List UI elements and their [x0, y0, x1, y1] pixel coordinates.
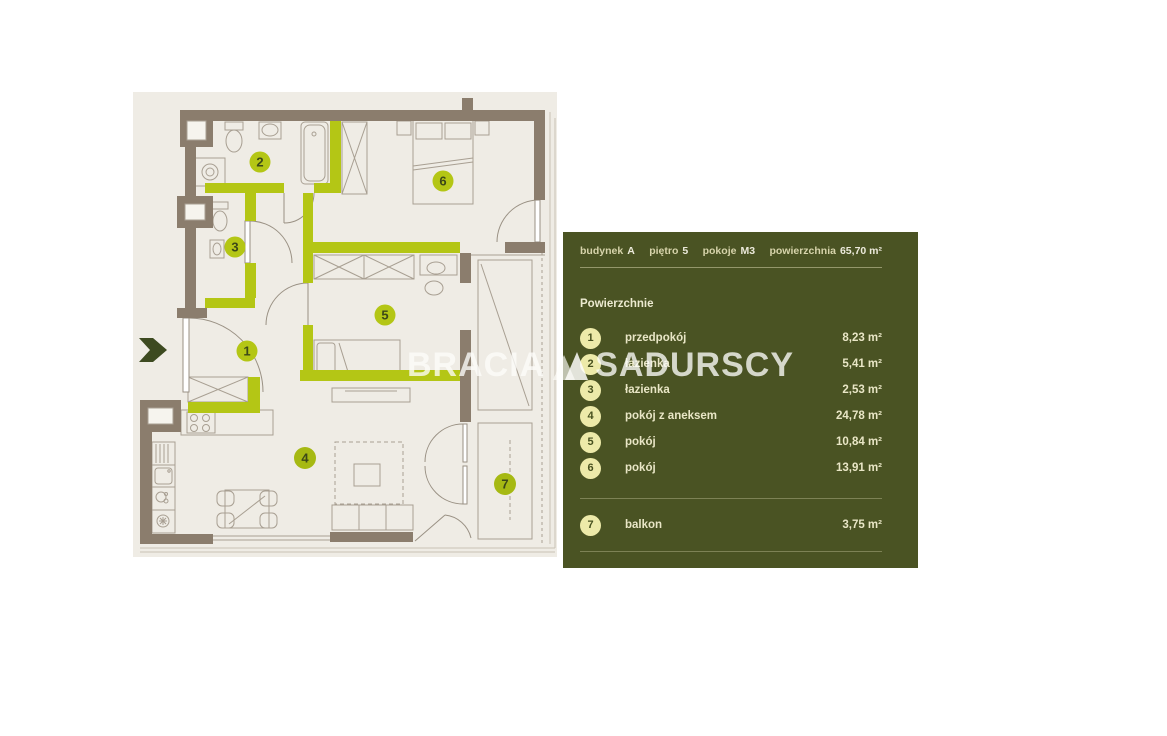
- bathtub-icon: [301, 122, 328, 184]
- room-area: 3,75 m²: [842, 519, 882, 531]
- room-name: balkon: [625, 519, 662, 531]
- header-building: budynekA: [580, 245, 635, 257]
- room-number-badge: 1: [580, 328, 601, 349]
- wall-windows: [148, 121, 206, 424]
- header-floor: piętro5: [649, 245, 688, 257]
- window-icon: [213, 536, 330, 540]
- room-number: 1: [243, 344, 250, 359]
- room-area: 2,53 m²: [842, 384, 882, 396]
- room-number-badge: 6: [580, 458, 601, 479]
- balcony-outline: [471, 252, 545, 544]
- door-arc: [425, 424, 463, 462]
- kitchen-hob-icon: [181, 410, 273, 435]
- door-arc: [425, 466, 463, 504]
- door-arc: [266, 283, 308, 325]
- room-number-badge: 5: [580, 432, 601, 453]
- room-area: 24,78 m²: [836, 410, 882, 422]
- washing-machine-icon: [195, 158, 225, 186]
- room-number: 6: [439, 174, 446, 189]
- door-arc: [445, 515, 471, 538]
- room-area: 8,23 m²: [842, 332, 882, 344]
- small-sink-icon: [210, 240, 224, 258]
- room-number: 4: [301, 451, 309, 466]
- door-leaf: [245, 221, 250, 263]
- room-name: pokój: [625, 436, 656, 448]
- sofa-icon: [332, 442, 413, 530]
- door-leaf: [463, 424, 467, 462]
- desk-icon: [420, 255, 457, 295]
- door-arc: [497, 200, 539, 242]
- floorplan-drawing: 1 2 3 4 5 6 7: [133, 92, 557, 557]
- room-number: 7: [501, 477, 508, 492]
- room-row-3: 3 łazienka 2,53 m²: [580, 377, 882, 403]
- areas-section-title: Powierzchnie: [580, 298, 882, 310]
- header-area: powierzchnia65,70 m²: [769, 245, 882, 257]
- closet-icon: [342, 122, 367, 194]
- kitchen-units-icon: [152, 442, 175, 533]
- apartment-info-panel: budynekA piętro5 pokojeM3 powierzchnia65…: [563, 232, 918, 568]
- room-number-badge: 4: [580, 406, 601, 427]
- room-number: 3: [231, 240, 238, 255]
- room-area: 10,84 m²: [836, 436, 882, 448]
- sink-icon: [259, 122, 281, 139]
- room-name: pokój: [625, 462, 656, 474]
- room-name: pokój z aneksem: [625, 410, 717, 422]
- room-number-badge: 7: [580, 515, 601, 536]
- header-divider: [580, 267, 882, 268]
- panel-header: budynekA piętro5 pokojeM3 powierzchnia65…: [580, 245, 882, 257]
- room-number-badge: 3: [580, 380, 601, 401]
- dining-table-icon: [217, 490, 277, 528]
- room-number: 5: [381, 308, 388, 323]
- room-row-1: 1 przedpokój 8,23 m²: [580, 325, 882, 351]
- listing-floorplan-image: 1 2 3 4 5 6 7 budynekA piętro5: [0, 0, 1167, 736]
- floorplan: 1 2 3 4 5 6 7: [133, 92, 557, 557]
- room-area: 13,91 m²: [836, 462, 882, 474]
- room-number-badge: 2: [580, 354, 601, 375]
- tv-stand-icon: [332, 388, 410, 402]
- door-arc: [250, 221, 292, 263]
- header-rooms: pokojeM3: [703, 245, 755, 257]
- wardrobe-icon: [314, 255, 414, 279]
- room-list: 1 przedpokój 8,23 m² 2 łazienka 5,41 m² …: [580, 325, 882, 481]
- room-row-5: 5 pokój 10,84 m²: [580, 429, 882, 455]
- door-leaf: [415, 515, 445, 541]
- room-row-6: 6 pokój 13,91 m²: [580, 455, 882, 481]
- entrance-arrow-icon: [139, 338, 167, 362]
- wardrobe-icon: [188, 377, 248, 402]
- toilet-icon: [225, 122, 243, 152]
- balcony-divider-bottom: [580, 551, 882, 552]
- room-row-7: 7 balkon 3,75 m²: [580, 499, 882, 551]
- room-row-2: 2 łazienka 5,41 m²: [580, 351, 882, 377]
- room-name: łazienka: [625, 384, 670, 396]
- room-number: 2: [256, 155, 263, 170]
- door-leaf: [463, 466, 467, 504]
- room-markers: 1 2 3 4 5 6 7: [225, 152, 517, 496]
- toilet-icon: [212, 202, 228, 231]
- room-name: łazienka: [625, 358, 670, 370]
- door-leaf: [535, 200, 540, 242]
- room-name: przedpokój: [625, 332, 686, 344]
- room-row-4: 4 pokój z aneksem 24,78 m²: [580, 403, 882, 429]
- room-area: 5,41 m²: [842, 358, 882, 370]
